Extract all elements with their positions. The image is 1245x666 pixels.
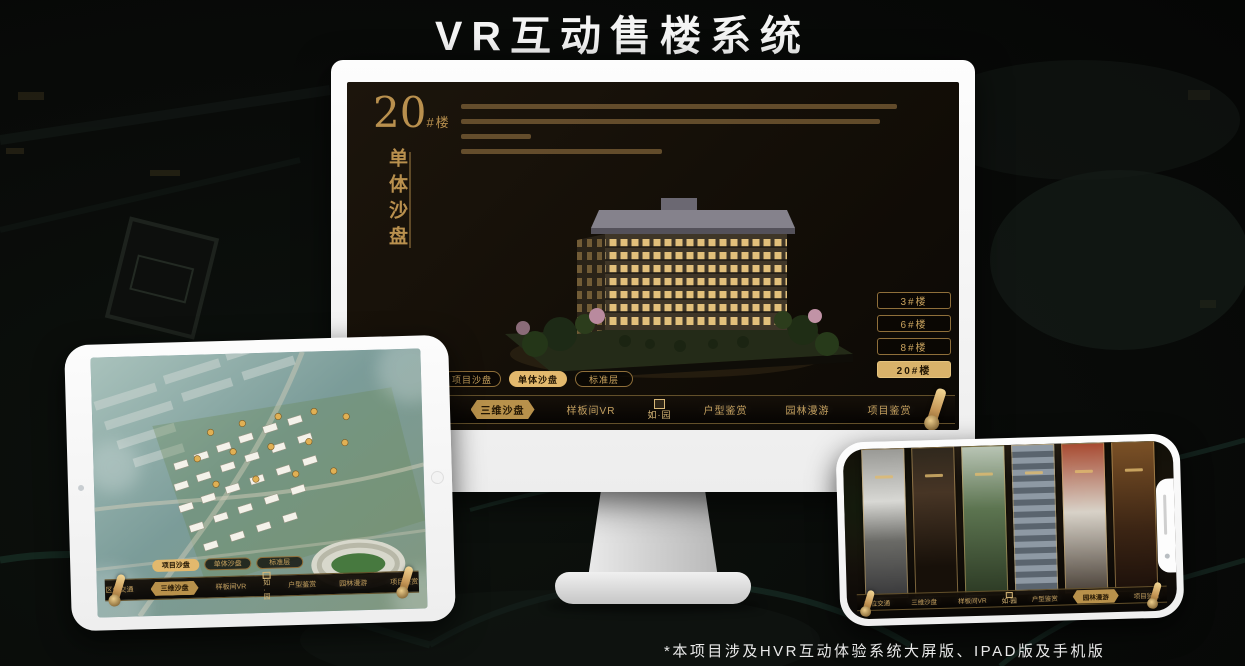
- gallery-panel-facade[interactable]: [1011, 444, 1058, 595]
- panel-label-placeholder: [1024, 471, 1042, 475]
- brand-logo-text: 如·园: [647, 411, 671, 420]
- building-number: 20: [373, 88, 426, 137]
- building-unit: #楼: [426, 115, 450, 130]
- floor-selector: 3#楼 6#楼 8#楼 20#楼: [877, 292, 951, 378]
- badge-caption: 单体沙盘: [383, 148, 410, 252]
- floor-button-8[interactable]: 8#楼: [877, 338, 951, 355]
- brand-logo-text: 如·园: [1002, 599, 1017, 606]
- panel-label-placeholder: [874, 475, 892, 479]
- mode-tab-project[interactable]: 项目沙盘: [443, 371, 501, 387]
- panel-label-placeholder: [1074, 469, 1092, 473]
- tablet-mode-tab-floorplate[interactable]: 标准层: [256, 556, 303, 569]
- building-3d-render: [465, 146, 865, 386]
- tablet-home-button: [431, 471, 444, 484]
- mode-tab-floorplate[interactable]: 标准层: [575, 371, 633, 387]
- tablet-camera-icon: [78, 485, 84, 491]
- phone-screen: 区位交通 三维沙盘 样板间VR 如·园 户型鉴赏 园林漫游 项目鉴赏: [843, 440, 1178, 619]
- page-title: VR互动售楼系统: [0, 2, 1245, 62]
- gallery-panel-warm-interior[interactable]: [1111, 441, 1158, 592]
- tablet-screen: 项目沙盘 单体沙盘 标准层 区位交通 三维沙盘 样板间VR 如·园 户型鉴赏 园…: [90, 348, 427, 617]
- building-badge: 20#楼: [373, 92, 451, 134]
- nav-item-garden-roam[interactable]: 园林漫游: [779, 400, 835, 419]
- nav-item-showroom-vr[interactable]: 样板间VR: [952, 592, 993, 607]
- gallery-panel-autumn[interactable]: [1061, 442, 1108, 593]
- tablet-mode-tab-single[interactable]: 单体沙盘: [204, 557, 251, 570]
- tablet-mode-tab-project[interactable]: 项目沙盘: [152, 559, 199, 572]
- gallery-panel-courtyard[interactable]: [861, 448, 908, 599]
- floor-button-20[interactable]: 20#楼: [877, 361, 951, 378]
- brand-logo: 如·园: [263, 571, 272, 600]
- phone-notch: [1156, 478, 1177, 572]
- brand-logo-text: 如·园: [263, 579, 272, 600]
- gallery-panel-garden[interactable]: [961, 445, 1008, 596]
- mode-tabs: 项目沙盘 单体沙盘 标准层: [443, 371, 633, 387]
- nav-item-floorplans[interactable]: 户型鉴赏: [697, 400, 753, 419]
- brand-logo: 如·园: [1001, 592, 1017, 606]
- footnote: *本项目涉及HVR互动体验系统大屏版、IPAD版及手机版: [664, 640, 1105, 661]
- tablet-device: 项目沙盘 单体沙盘 标准层 区位交通 三维沙盘 样板间VR 如·园 户型鉴赏 园…: [64, 335, 456, 632]
- nav-item-sandbox[interactable]: 三维沙盘: [471, 400, 535, 419]
- brand-logo: 如·园: [647, 399, 671, 420]
- nav-item-garden-roam[interactable]: 园林漫游: [1073, 588, 1119, 603]
- panel-label-placeholder: [1124, 468, 1142, 472]
- seal-icon: [654, 399, 665, 409]
- seal-icon: [263, 571, 271, 578]
- nav-item-floorplans[interactable]: 户型鉴赏: [282, 577, 322, 592]
- phone-camera-icon: [1165, 554, 1170, 559]
- panel-label-placeholder: [974, 472, 992, 476]
- nav-item-garden-roam[interactable]: 园林漫游: [333, 576, 373, 591]
- nav-item-sandbox[interactable]: 三维沙盘: [905, 593, 943, 608]
- floor-button-6[interactable]: 6#楼: [877, 315, 951, 332]
- nav-item-sandbox[interactable]: 三维沙盘: [150, 581, 198, 596]
- mode-tab-single[interactable]: 单体沙盘: [509, 371, 567, 387]
- monitor-stand-neck: [588, 490, 718, 578]
- floor-button-3[interactable]: 3#楼: [877, 292, 951, 309]
- scene-gallery: [861, 441, 1158, 599]
- gallery-panel-dark-interior[interactable]: [911, 446, 958, 597]
- phone-speaker-icon: [1163, 495, 1167, 535]
- monitor-stand-foot: [555, 572, 751, 604]
- scroll-handle-icon[interactable]: [925, 387, 947, 428]
- panel-label-placeholder: [924, 474, 942, 478]
- nav-item-floorplans[interactable]: 户型鉴赏: [1026, 590, 1064, 605]
- phone-device: 区位交通 三维沙盘 样板间VR 如·园 户型鉴赏 园林漫游 项目鉴赏: [835, 433, 1184, 627]
- nav-item-showroom-vr[interactable]: 样板间VR: [561, 400, 622, 419]
- poster-canvas: VR互动售楼系统 20#楼 单体沙盘: [0, 0, 1245, 666]
- nav-item-showroom-vr[interactable]: 样板间VR: [209, 579, 252, 594]
- nav-item-project-view[interactable]: 项目鉴赏: [861, 400, 917, 419]
